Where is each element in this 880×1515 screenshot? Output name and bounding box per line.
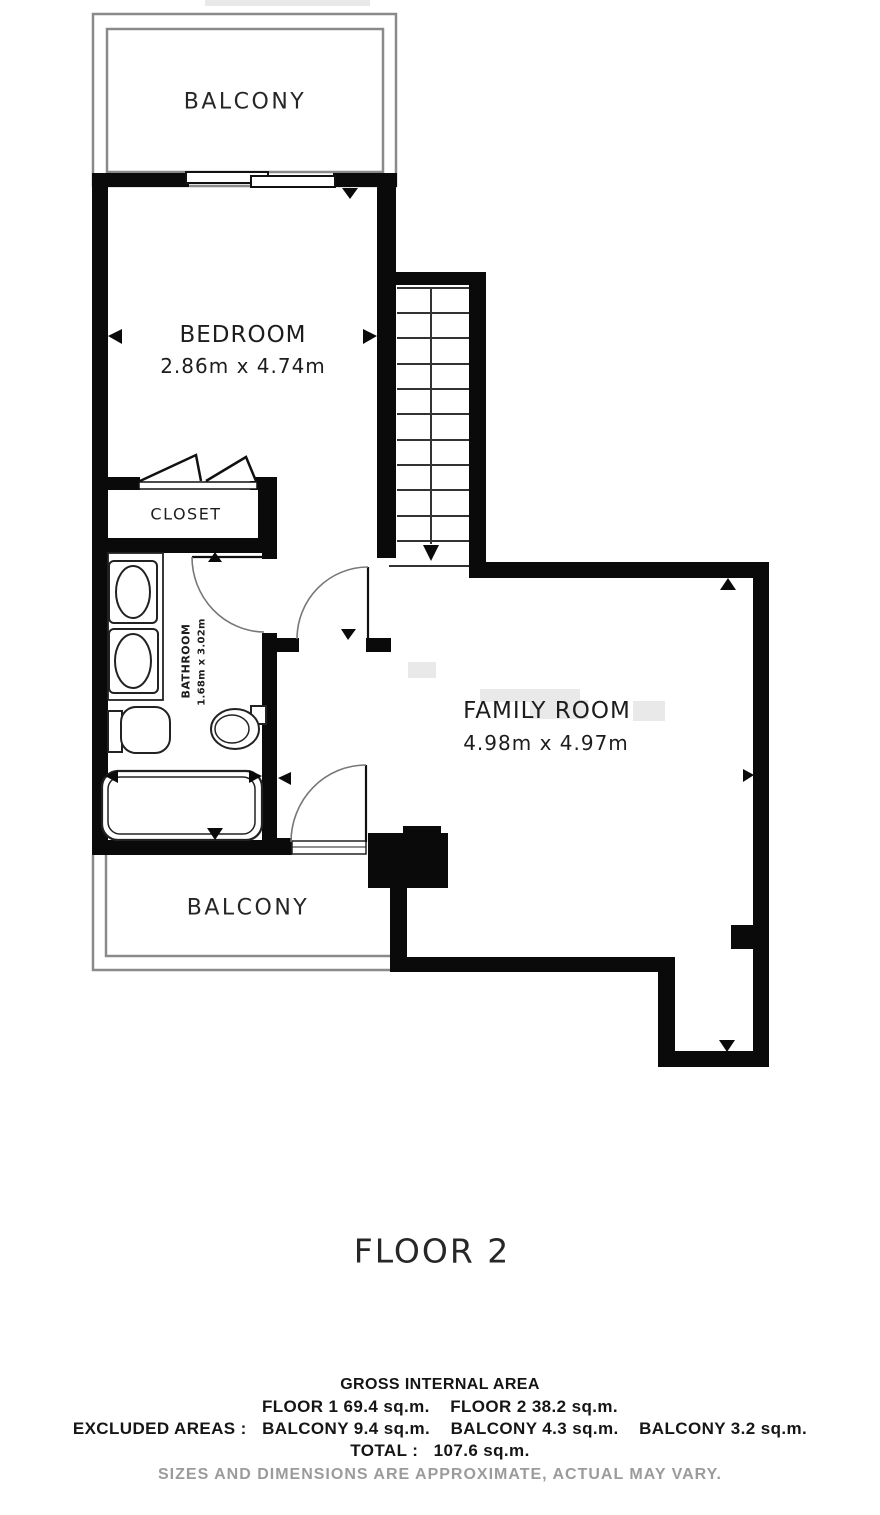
floorplan-drawing: [0, 0, 880, 1515]
wall-balcony-right: [390, 885, 407, 972]
wall-family-right: [753, 562, 769, 1067]
sink-bowl: [115, 634, 151, 688]
smudge: [633, 701, 665, 721]
floorplan-page: BALCONY BEDROOM 2.86m x 4.74m CLOSET BAT…: [0, 0, 880, 1515]
bifold-panel-right: [206, 457, 256, 481]
smudge: [408, 662, 436, 678]
sliding-door-panel: [251, 176, 335, 187]
bathtub-inner: [108, 777, 255, 834]
wall-landing-right: [366, 638, 391, 652]
wall-closet-stub-left: [105, 477, 140, 490]
area-summary: GROSS INTERNAL AREA FLOOR 1 69.4 sq.m. F…: [0, 1374, 880, 1486]
smudge: [205, 0, 370, 6]
toilet-bowl: [121, 707, 170, 753]
arrow-right-family: [743, 769, 754, 782]
arrow-down-family-bottom: [719, 1040, 735, 1052]
wall-corner-mass: [368, 833, 448, 888]
balcony-door-swing: [291, 765, 366, 842]
arrow-left-hall-wall: [278, 772, 291, 785]
wall-closet-bottom: [92, 538, 277, 553]
closet-bifold-doors: [139, 455, 257, 489]
bathroom-label: BATHROOM: [180, 624, 193, 699]
balcony-top-label: BALCONY: [184, 90, 306, 115]
wall-family-bottom-mid: [390, 957, 675, 972]
sink-bowl: [116, 566, 150, 618]
floor-areas-line: FLOOR 1 69.4 sq.m. FLOOR 2 38.2 sq.m.: [0, 1396, 880, 1418]
arrow-down-top-wall: [342, 188, 358, 199]
bedroom-dimensions: 2.86m x 4.74m: [160, 354, 326, 378]
excluded-areas-line: EXCLUDED AREAS : BALCONY 9.4 sq.m. BALCO…: [0, 1418, 880, 1440]
staircase: [389, 288, 469, 566]
wall-stair-right: [469, 272, 486, 572]
family-door-swing: [297, 567, 368, 639]
family-room-dimensions: 4.98m x 4.97m: [463, 731, 629, 755]
arrow-up-family-top: [720, 578, 736, 590]
wall-bedroom-right: [377, 187, 396, 558]
bedroom-label: BEDROOM: [179, 322, 306, 348]
gross-internal-area-heading: GROSS INTERNAL AREA: [0, 1374, 880, 1396]
arrow-right-bedroom: [363, 329, 377, 344]
wall-top-left: [92, 173, 189, 187]
wall-bath-right: [262, 633, 277, 843]
wall-family-step: [658, 957, 675, 1067]
wall-notch: [731, 925, 753, 949]
total-area-line: TOTAL : 107.6 sq.m.: [0, 1440, 880, 1462]
wall-left: [92, 173, 108, 855]
arrow-left-bedroom: [108, 329, 122, 344]
closet-label: CLOSET: [150, 505, 221, 524]
wall-top-right: [333, 173, 397, 187]
toilet2-bowl-inner: [215, 715, 249, 743]
arrow-down-landing-door: [341, 629, 356, 640]
closet-opening: [139, 482, 257, 489]
toilet-tank: [108, 711, 122, 752]
family-room-label: FAMILY ROOM: [463, 698, 631, 724]
floor-title: FLOOR 2: [354, 1232, 511, 1271]
bathroom-dimensions: 1.68m x 3.02m: [197, 618, 208, 706]
arrow-down-stairs: [423, 545, 439, 561]
wall-corner-bump: [403, 826, 441, 835]
balcony-bottom-label: BALCONY: [187, 896, 309, 921]
wall-family-top: [469, 562, 769, 578]
disclaimer-line: SIZES AND DIMENSIONS ARE APPROXIMATE, AC…: [0, 1464, 880, 1486]
wall-landing-left: [270, 638, 299, 652]
bifold-panel-left: [140, 455, 201, 481]
wall-bath-right-stub: [262, 540, 277, 559]
